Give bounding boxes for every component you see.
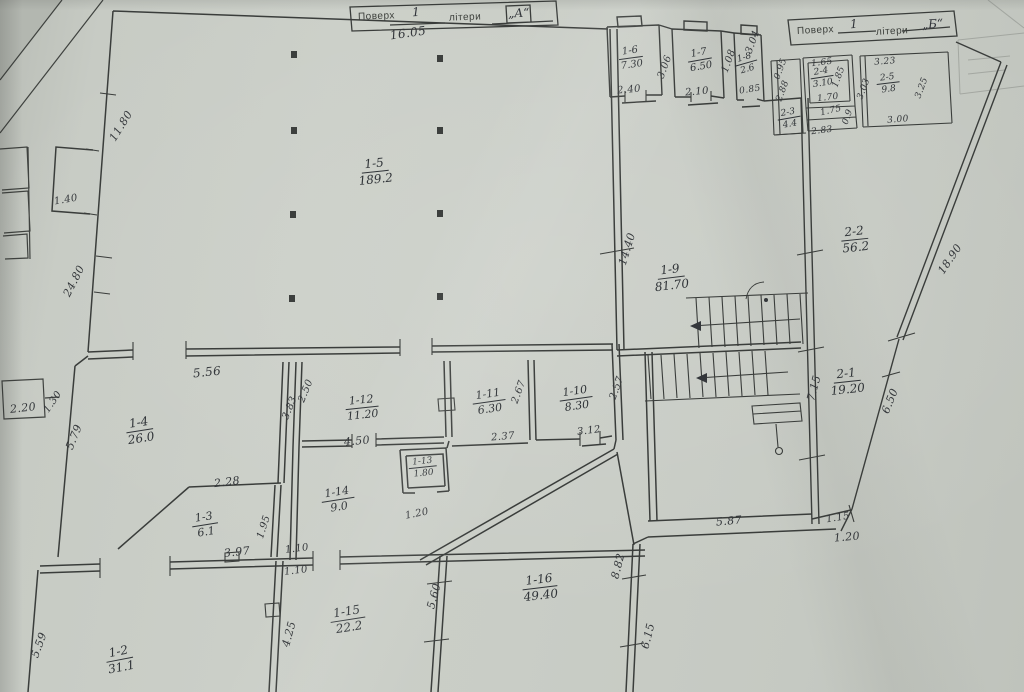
room-label: 1-981.70 [652, 261, 690, 295]
dimension-label: 2.37 [491, 430, 516, 443]
dimension-label: 3.00 [887, 114, 909, 126]
scanned-floor-plan-sheet: Поверх 1 літери „А“ Поверх 1 літери „Б“ … [0, 0, 1024, 692]
floor-value-b: 1 [850, 17, 859, 31]
room-label: 2-119.20 [828, 365, 865, 398]
dimension-label: 2.40 [617, 83, 642, 96]
room-area: 56.2 [842, 239, 870, 257]
letter-label-b: літери [876, 25, 909, 38]
dimension-label: 2.10 [685, 85, 710, 98]
dimension-label: 3.97 [223, 544, 250, 560]
staircase [645, 282, 808, 455]
letter-value-b: „Б“ [922, 16, 944, 31]
floor-value-a: 1 [412, 5, 420, 19]
room-label: 1-1522.2 [328, 603, 367, 638]
floor-label-b: Поверх [797, 24, 834, 37]
room-label: 1-231.1 [104, 643, 136, 677]
room-label: 1-108.30 [558, 383, 594, 415]
room-label: 1-116.30 [471, 386, 507, 418]
room-label: 1-67.30 [617, 44, 644, 72]
letter-value-a: „А“ [508, 5, 530, 20]
dimension-label: 5.87 [715, 513, 742, 528]
room-label: 1-131.80 [408, 455, 438, 481]
room-label: 1-1649.40 [521, 571, 559, 605]
letter-label-a: літери [449, 11, 482, 23]
room-label: 2-59.8 [875, 71, 900, 96]
room-area: 1.80 [413, 467, 434, 480]
room-area: 6.1 [196, 524, 215, 540]
title-block-frames [350, 1, 957, 45]
room-label: 1-426.0 [124, 414, 156, 448]
room-label: 1-36.1 [190, 510, 220, 541]
dimension-label: 1.20 [833, 529, 860, 544]
room-label: 1-1211.20 [344, 393, 379, 424]
dimension-label: 5.56 [192, 364, 222, 381]
dimension-label: 4.50 [343, 433, 370, 448]
room-label: 2-256.2 [840, 224, 870, 256]
dimension-label: 2.20 [9, 400, 36, 416]
floorplan-drawing [0, 0, 1024, 692]
room-label: 1-76.50 [686, 46, 714, 75]
room-area: 9.8 [881, 83, 897, 96]
room-label: 2-34.4 [776, 106, 802, 132]
dimension-label: 3.23 [874, 56, 896, 68]
room-area: 9.0 [329, 499, 348, 515]
floor-label-a: Поверх [358, 10, 395, 22]
room-label: 1-5189.2 [356, 155, 393, 188]
room-label: 1-149.0 [320, 484, 357, 516]
